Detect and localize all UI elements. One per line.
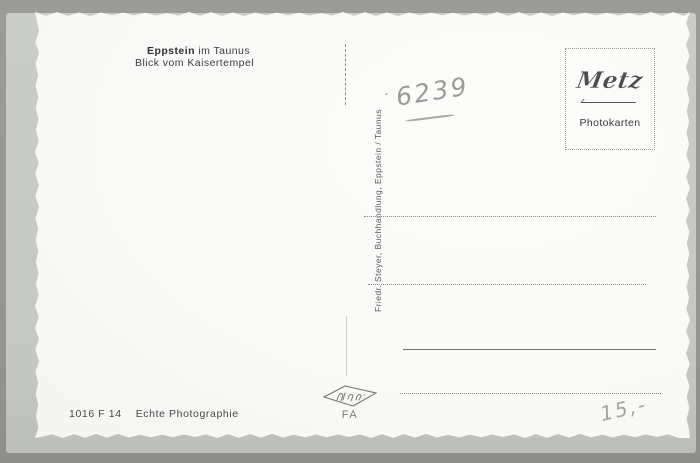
address-line-2 xyxy=(368,284,646,285)
caption-title-bold: Eppstein xyxy=(147,45,195,57)
metz-logo: Metz xyxy=(566,67,654,94)
postcard-back: Eppstein im Taunus Blick vom Kaisertempe… xyxy=(35,12,690,438)
handwritten-price: 15,- xyxy=(598,392,649,426)
address-line-3 xyxy=(403,349,656,350)
printer-code: FA xyxy=(321,409,379,421)
pencil-number: 6239 xyxy=(394,71,471,111)
order-code: 1016 F 14 xyxy=(69,408,122,420)
footer-imprint: 1016 F 14Echte Photographie xyxy=(69,408,239,420)
pencil-underline xyxy=(405,114,455,122)
postcard-scan: Eppstein im Taunus Blick vom Kaisertempe… xyxy=(0,0,700,463)
caption-block: Eppstein im Taunus Blick vom Kaisertempe… xyxy=(135,45,439,69)
handwritten-number: ·6239 xyxy=(382,71,471,113)
agfa-diamond-logo: FA xyxy=(321,384,379,421)
agfa-diamond-icon xyxy=(322,384,378,408)
metz-brand-text: Metz xyxy=(575,67,646,94)
caption-title-line: Eppstein im Taunus xyxy=(147,45,439,57)
metz-logo-underline xyxy=(580,99,638,103)
publisher-imprint: Friedr. Steyer, Buchhandlung, Eppstein /… xyxy=(373,98,388,312)
stamp-box-caption: Photokarten xyxy=(566,117,654,129)
caption-subtitle: Blick vom Kaisertempel xyxy=(135,57,413,69)
address-line-4 xyxy=(400,393,661,394)
caption-title-rest: im Taunus xyxy=(198,45,250,57)
divider-line-bottom xyxy=(346,316,347,376)
divider-dash-top xyxy=(345,44,346,105)
address-line-1 xyxy=(364,216,656,217)
stamp-box: Metz Photokarten xyxy=(565,48,655,150)
photo-type-label: Echte Photographie xyxy=(136,408,239,420)
